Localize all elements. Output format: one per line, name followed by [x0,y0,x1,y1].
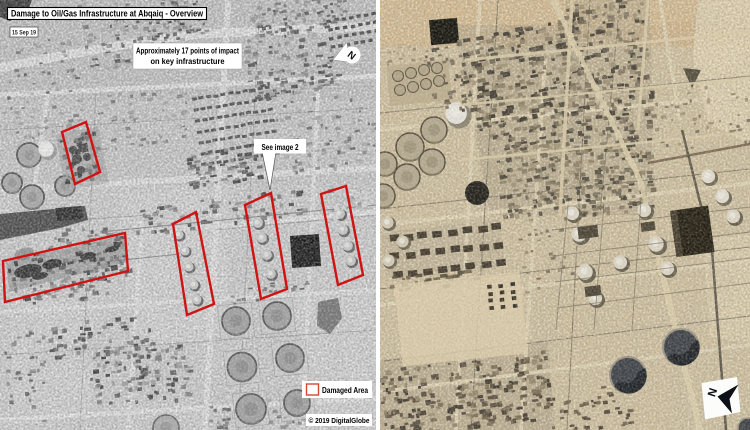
svg-text:Damage to Oil/Gas Infrastructu: Damage to Oil/Gas Infrastructure at Abqa… [11,8,203,18]
svg-text:Approximately 17 points of imp: Approximately 17 points of impact [136,47,239,56]
svg-text:© 2019 DigitalGlobe: © 2019 DigitalGlobe [309,416,370,425]
svg-text:on key infrastructure: on key infrastructure [151,57,225,66]
svg-text:See image 2: See image 2 [262,143,300,152]
svg-text:Damaged Area: Damaged Area [322,385,368,395]
svg-text:15 Sep 19: 15 Sep 19 [12,30,36,37]
